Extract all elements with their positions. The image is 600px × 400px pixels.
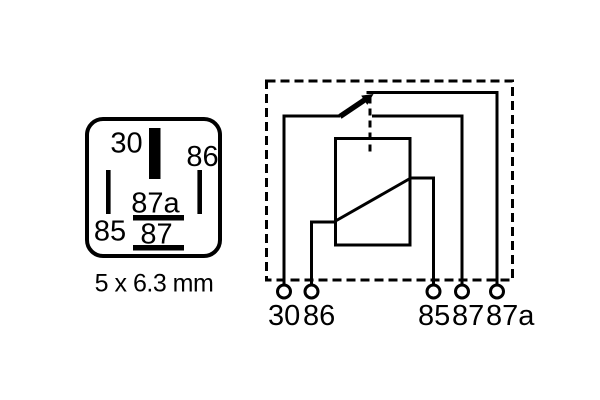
pinout-view: 30 86 85 87a 87 5 x 6.3 mm: [87, 119, 220, 298]
pin-blade-85: [106, 170, 111, 214]
coil-symbol: [336, 139, 411, 246]
terminal-circle-85: [427, 285, 440, 298]
pinout-caption: 5 x 6.3 mm: [95, 270, 214, 298]
terminal-label-85: 85: [418, 300, 450, 332]
pin-label-87: 87: [140, 219, 172, 251]
terminal-label-86: 86: [303, 300, 335, 332]
wire-terminal-85: [410, 178, 434, 285]
relay-housing-outline: [267, 81, 513, 280]
coil-diagonal: [336, 179, 411, 222]
terminal-label-87: 87: [452, 300, 484, 332]
relay-diagram-figure: 30 86 85 87a 87 5 x 6.3 mm: [0, 0, 600, 400]
wire-terminal-86: [312, 222, 336, 285]
pin-label-86: 86: [186, 141, 218, 173]
pin-label-30: 30: [110, 128, 142, 160]
terminal-circle-87a: [491, 285, 504, 298]
terminal-circle-86: [305, 285, 318, 298]
wire-terminal-87: [372, 116, 462, 285]
terminal-circle-30: [278, 285, 291, 298]
pin-label-87a: 87a: [131, 188, 180, 220]
terminal-circle-87: [456, 285, 469, 298]
terminal-label-30: 30: [268, 300, 300, 332]
schematic-view: 30 86 85 87 87a: [267, 81, 536, 332]
pin-label-85: 85: [94, 216, 126, 248]
pin-blade-86: [197, 170, 202, 214]
pin-blade-30: [149, 128, 161, 179]
wire-terminal-87a: [367, 93, 498, 286]
terminal-label-87a: 87a: [486, 300, 535, 332]
switch-arm: [340, 100, 365, 117]
relay-diagram-svg: 30 86 85 87a 87 5 x 6.3 mm: [0, 0, 600, 400]
